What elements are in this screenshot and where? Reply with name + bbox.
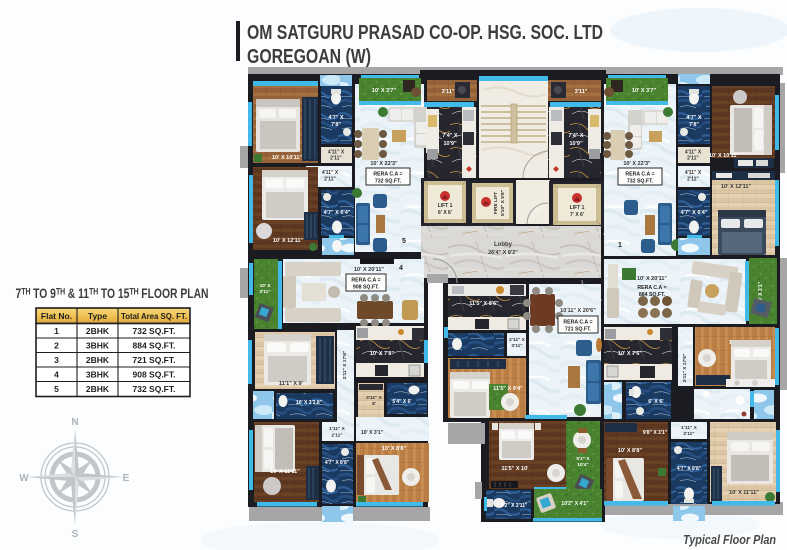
svg-text:RERA C.A =: RERA C.A = [351, 278, 380, 284]
svg-text:908 SQ.FT.: 908 SQ.FT. [133, 370, 176, 380]
svg-text:4: 4 [54, 370, 59, 380]
svg-text:4'7" X: 4'7" X [686, 115, 702, 121]
svg-text:10' X 20'11": 10' X 20'11" [354, 267, 384, 273]
svg-text:10' X 3'7": 10' X 3'7" [632, 88, 657, 94]
svg-text:5'10" X 5'8": 5'10" X 5'8" [500, 190, 506, 216]
svg-text:W: W [19, 473, 29, 484]
svg-text:3BHK: 3BHK [86, 370, 110, 380]
svg-text:8'2" X 3'11": 8'2" X 3'11" [501, 503, 528, 509]
svg-text:2'11" X 17'6": 2'11" X 17'6" [342, 351, 348, 379]
svg-text:RERA C.A =: RERA C.A = [563, 320, 592, 326]
svg-text:10'2" X 4'1": 10'2" X 4'1" [561, 501, 589, 507]
svg-text:3'11": 3'11" [442, 89, 455, 95]
svg-text:732 SQ.FT.: 732 SQ.FT. [375, 179, 402, 185]
svg-text:2'11" X 17'6": 2'11" X 17'6" [682, 354, 688, 382]
svg-text:4'7" X: 4'7" X [328, 115, 344, 121]
svg-text:2BHK: 2BHK [86, 355, 110, 365]
svg-text:4'11" X: 4'11" X [322, 170, 339, 176]
svg-text:5'2" X: 5'2" X [576, 456, 590, 462]
svg-text:10' X 7'8": 10' X 7'8" [370, 351, 395, 357]
svg-text:10' X: 10' X [259, 283, 271, 289]
svg-text:4'11" X: 4'11" X [685, 170, 702, 176]
svg-text:9'8" X 3'1": 9'8" X 3'1" [643, 430, 668, 436]
svg-text:26'4" X 8'2": 26'4" X 8'2" [488, 250, 518, 256]
svg-text:4'7" X 8'8": 4'7" X 8'8" [677, 466, 702, 472]
svg-text:3: 3 [54, 355, 59, 365]
svg-text:10' X 12'11": 10' X 12'11" [273, 238, 303, 244]
svg-text:N: N [71, 417, 78, 428]
svg-text:FIRE LIFT: FIRE LIFT [493, 192, 499, 214]
svg-text:11'5" X 8'6": 11'5" X 8'6" [469, 301, 499, 307]
svg-text:3'11" X: 3'11" X [366, 395, 382, 401]
svg-text:10'11" X 20'6": 10'11" X 20'6" [560, 308, 596, 314]
svg-text:5: 5 [402, 238, 406, 245]
svg-text:10'9": 10'9" [569, 141, 582, 147]
svg-text:2: 2 [54, 341, 59, 351]
svg-text:10' X 8'8": 10' X 8'8" [618, 448, 643, 454]
svg-text:2'11": 2'11" [687, 156, 699, 162]
svg-text:Type: Type [88, 311, 107, 321]
svg-text:6' X 6': 6' X 6' [648, 399, 664, 405]
svg-text:S: S [72, 529, 79, 540]
svg-text:7'4" X: 7'4" X [568, 133, 584, 139]
svg-text:10' X 3'7": 10' X 3'7" [372, 88, 397, 94]
svg-text:10' X 3'2.8": 10' X 3'2.8" [296, 400, 323, 406]
svg-text:7'8": 7'8" [689, 122, 699, 128]
svg-text:10' X 22'3": 10' X 22'3" [370, 161, 398, 167]
svg-text:4'7" X 8'8": 4'7" X 8'8" [325, 460, 350, 466]
svg-text:1: 1 [54, 326, 59, 336]
svg-text:10' X 12'11": 10' X 12'11" [721, 184, 751, 190]
svg-text:3'11": 3'11" [575, 89, 588, 95]
svg-text:GOREGOAN (W): GOREGOAN (W) [247, 46, 371, 68]
svg-text:4'7" X 6'4": 4'7" X 6'4" [324, 210, 351, 216]
svg-text:7'4" X: 7'4" X [442, 133, 458, 139]
svg-text:10' X 10'11": 10' X 10'11" [272, 155, 302, 161]
svg-text:11'1" X 9': 11'1" X 9' [279, 381, 304, 387]
svg-text:Total Area SQ. FT.: Total Area SQ. FT. [121, 312, 187, 321]
svg-text:Typical Floor Plan: Typical Floor Plan [683, 532, 776, 547]
svg-text:2BHK: 2BHK [86, 326, 110, 336]
svg-text:884 SQ.FT.: 884 SQ.FT. [133, 341, 176, 351]
svg-text:2'11": 2'11" [330, 156, 342, 162]
svg-text:7ᵀᴴ TO 9ᵀᴴ & 11ᵀᴴ TO 15ᵀᴴ FLOO: 7ᵀᴴ TO 9ᵀᴴ & 11ᵀᴴ TO 15ᵀᴴ FLOOR PLAN [16, 285, 209, 301]
svg-text:2'11": 2'11" [324, 177, 336, 183]
svg-text:721 SQ.FT.: 721 SQ.FT. [133, 355, 176, 365]
svg-text:8': 8' [372, 401, 376, 407]
svg-text:Lobby: Lobby [494, 242, 513, 248]
svg-text:2BHK: 2BHK [86, 384, 110, 394]
svg-text:Flat No.: Flat No. [41, 311, 72, 321]
svg-text:11'5" X 9'4": 11'5" X 9'4" [493, 386, 523, 392]
svg-text:5'4" X 6': 5'4" X 6' [392, 399, 411, 405]
svg-text:LIFT 1: LIFT 1 [438, 203, 453, 209]
svg-text:2'11": 2'11" [331, 433, 342, 439]
svg-text:10' X 22'3": 10' X 22'3" [623, 161, 651, 167]
svg-text:2'11" X: 2'11" X [509, 337, 525, 343]
svg-text:LIFT 1: LIFT 1 [570, 205, 585, 211]
svg-text:10' X 3'1": 10' X 3'1" [361, 430, 384, 436]
svg-text:2'11": 2'11" [687, 177, 699, 183]
svg-text:7' X 6': 7' X 6' [570, 212, 584, 218]
svg-text:2'11": 2'11" [683, 431, 694, 437]
svg-text:3BHK: 3BHK [86, 341, 110, 351]
svg-text:5: 5 [54, 384, 59, 394]
svg-text:10' X 20'11": 10' X 20'11" [637, 276, 667, 282]
svg-text:3'11": 3'11" [259, 289, 270, 295]
svg-text:908 SQ.FT.: 908 SQ.FT. [353, 285, 380, 291]
svg-text:1'11" X: 1'11" X [681, 425, 697, 431]
svg-text:732 SQ.FT.: 732 SQ.FT. [133, 326, 176, 336]
svg-text:10'4": 10'4" [577, 462, 588, 468]
svg-text:4: 4 [399, 265, 403, 272]
svg-text:E: E [123, 473, 130, 484]
svg-text:7'8": 7'8" [331, 122, 341, 128]
svg-text:10' X 11'11": 10' X 11'11" [729, 490, 759, 496]
svg-text:4'7" X 6'4": 4'7" X 6'4" [681, 210, 708, 216]
svg-text:10' X 7'6": 10' X 7'6" [618, 351, 643, 357]
svg-text:3'11": 3'11" [511, 343, 522, 349]
svg-text:RERA C.A =: RERA C.A = [373, 172, 402, 178]
svg-text:10' X 11'11": 10' X 11'11" [270, 469, 300, 475]
svg-text:732 SQ.FT.: 732 SQ.FT. [627, 179, 654, 185]
svg-text:1: 1 [618, 242, 622, 249]
svg-text:1'11" X: 1'11" X [329, 426, 345, 432]
svg-text:11'5" X 10': 11'5" X 10' [502, 466, 530, 472]
svg-text:721 SQ.FT.: 721 SQ.FT. [565, 327, 592, 333]
svg-text:10' X 8'8": 10' X 8'8" [382, 446, 407, 452]
svg-text:OM SATGURU PRASAD CO-OP. HSG.: OM SATGURU PRASAD CO-OP. HSG. SOC. LTD [247, 22, 603, 44]
svg-text:RERA C.A =: RERA C.A = [637, 285, 666, 291]
svg-text:10'9": 10'9" [443, 141, 456, 147]
svg-text:6' X 6': 6' X 6' [438, 210, 452, 216]
svg-text:RERA C.A =: RERA C.A = [625, 172, 654, 178]
svg-text:732 SQ.FT.: 732 SQ.FT. [133, 384, 176, 394]
